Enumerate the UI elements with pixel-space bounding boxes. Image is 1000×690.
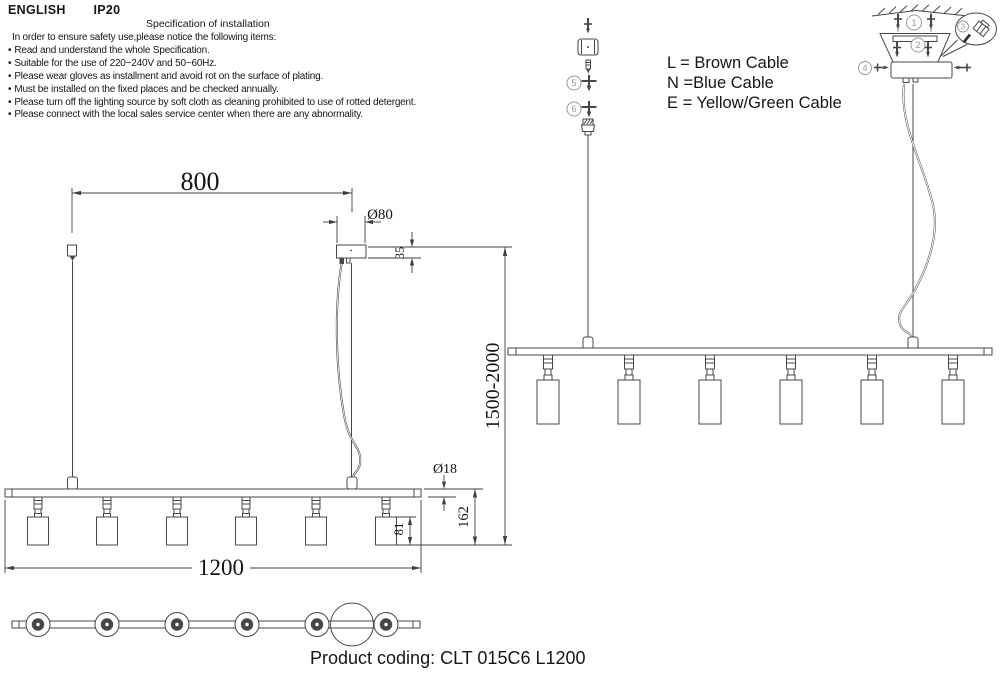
dimension-tube-diameter: Ø18 [424, 462, 483, 511]
lamp-top-view [235, 613, 259, 637]
threaded-fitting [582, 119, 595, 135]
language-label: ENGLISH [8, 3, 66, 17]
spotlight [699, 355, 721, 424]
right-suspension-rod [347, 263, 357, 489]
canopy-screw-dot [350, 250, 352, 252]
header: ENGLISH IP20 [8, 3, 120, 17]
spec-item: •Suitable for the use of 220~240V and 50… [8, 58, 416, 71]
ip-rating: IP20 [93, 3, 120, 17]
left-suspension-rod [68, 245, 78, 489]
spotlight [236, 497, 257, 545]
dimension-800-label: 800 [181, 167, 220, 196]
spec-title: Specification of installation [146, 18, 270, 30]
dimension-suspension-height: 1500-2000 [390, 247, 512, 545]
dimension-tube-diameter-label: Ø18 [433, 462, 457, 477]
lamp-top-view [95, 613, 119, 637]
lamp-top-view [26, 613, 50, 637]
lamp-top-view [305, 613, 329, 637]
dimension-fixture-length-label: 1200 [198, 555, 244, 580]
dimension-fixture-length: 1200 [5, 500, 421, 580]
spotlight [537, 355, 559, 424]
power-cable [337, 264, 360, 477]
canopy-top-view [331, 603, 374, 646]
spotlight [28, 497, 49, 545]
dimension-canopy-diameter-label: Ø80 [367, 207, 393, 223]
callout-2-label: 2 [915, 40, 920, 51]
ceiling-mount-detail: 1 2 4 [859, 5, 997, 83]
callout-5-label: 5 [571, 78, 576, 88]
fixture-bar [508, 348, 992, 355]
spec-item: •Please connect with the local sales ser… [8, 109, 416, 122]
canopy-body [891, 62, 952, 78]
spec-item: •Please turn off the lighting source by … [8, 97, 416, 110]
top-view-drawing [0, 595, 440, 655]
spotlight [306, 497, 327, 545]
dimension-shade-height-label: 81 [391, 523, 406, 536]
spec-item: •Must be installed on the fixed places a… [8, 84, 416, 97]
dimension-800: 800 [72, 167, 352, 233]
callout-6-label: 6 [571, 104, 576, 114]
dimension-canopy-diameter: Ø80 [323, 207, 393, 243]
spotlight [780, 355, 802, 424]
spec-intro: In order to ensure safety use,please not… [8, 32, 416, 45]
power-cable [899, 84, 935, 338]
callout-1-label: 1 [911, 18, 916, 29]
dimension-canopy-height: 35 [368, 232, 512, 273]
dimension-canopy-height-label: 35 [393, 247, 407, 260]
ceiling-line [872, 11, 968, 17]
dimension-drop-height-label: 162 [456, 506, 472, 528]
ceiling-canopy [337, 245, 367, 264]
installation-sheet: ENGLISH IP20 Specification of installati… [0, 0, 1000, 690]
callout-4-label: 4 [862, 63, 867, 73]
spotlight [97, 497, 118, 545]
fixture-bar [5, 489, 421, 497]
dimension-drop-height: 162 [456, 489, 477, 545]
spotlight [376, 497, 397, 545]
callout-3-label: 3 [961, 22, 966, 31]
spec-body: In order to ensure safety use,please not… [8, 32, 416, 122]
spotlight [618, 355, 640, 424]
lamp-top-view [165, 613, 189, 637]
spotlight [861, 355, 883, 424]
rod-grip [908, 337, 918, 349]
spotlight [942, 355, 964, 424]
exploded-hardware: 5 6 [567, 18, 598, 337]
spec-item: •Please wear gloves as installment and a… [8, 71, 416, 84]
spec-item: •Read and understand the whole Specifica… [8, 45, 416, 58]
lamp-top-view [374, 613, 398, 637]
rod-grip [583, 337, 593, 349]
front-view-drawing: 800 Ø80 35 [0, 165, 520, 585]
spotlight [167, 497, 188, 545]
installation-detail-drawing: 5 6 [500, 0, 1000, 452]
